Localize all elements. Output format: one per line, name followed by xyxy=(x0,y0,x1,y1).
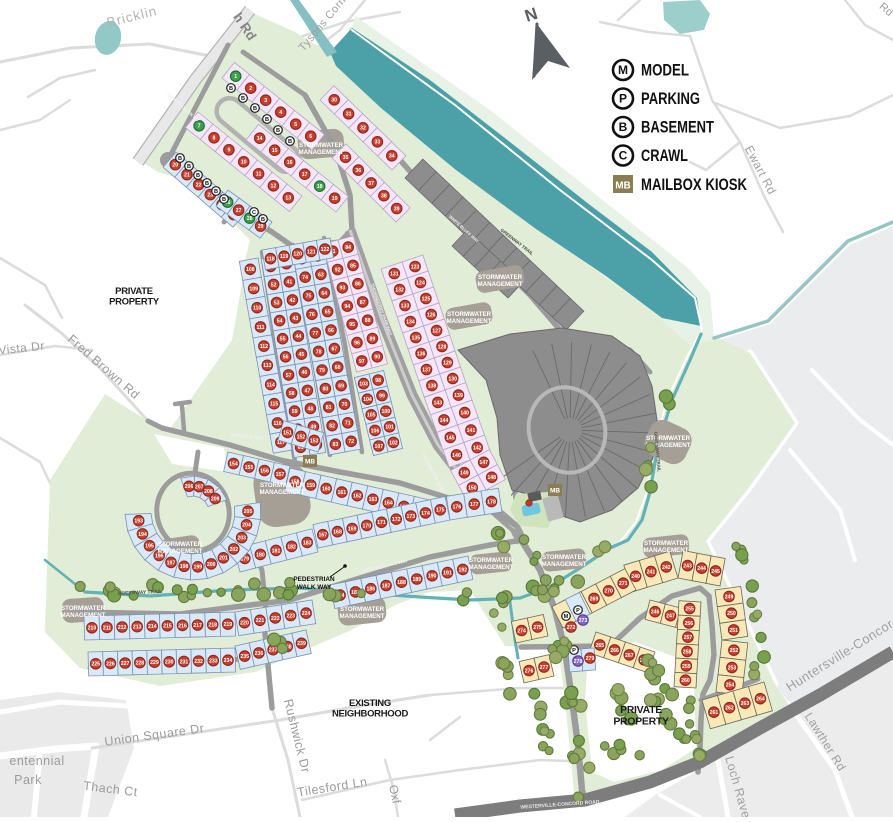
svg-text:190: 190 xyxy=(428,574,437,580)
svg-text:136: 136 xyxy=(417,351,426,357)
svg-text:275: 275 xyxy=(533,625,542,631)
svg-text:STORMWATER: STORMWATER xyxy=(447,311,492,318)
svg-text:203: 203 xyxy=(237,536,246,542)
svg-text:151: 151 xyxy=(283,430,292,436)
svg-text:P: P xyxy=(572,648,576,654)
svg-text:258: 258 xyxy=(683,649,692,655)
svg-text:265: 265 xyxy=(595,643,604,649)
svg-text:10: 10 xyxy=(241,160,247,166)
svg-text:102: 102 xyxy=(389,440,398,446)
svg-text:239: 239 xyxy=(297,641,306,647)
svg-text:68: 68 xyxy=(335,365,341,371)
svg-text:186: 186 xyxy=(366,587,375,593)
svg-text:242: 242 xyxy=(662,565,671,571)
svg-text:79: 79 xyxy=(319,368,325,374)
svg-text:STORMWATER: STORMWATER xyxy=(299,142,344,149)
svg-text:MANAGEMENT: MANAGEMENT xyxy=(339,613,384,620)
svg-text:STORMWATER: STORMWATER xyxy=(469,557,514,564)
svg-text:123: 123 xyxy=(411,264,420,270)
svg-text:241: 241 xyxy=(647,570,656,576)
svg-text:234: 234 xyxy=(224,658,233,664)
svg-text:95: 95 xyxy=(349,322,355,328)
svg-text:67: 67 xyxy=(332,347,338,353)
svg-text:54: 54 xyxy=(277,319,283,325)
svg-text:32: 32 xyxy=(360,126,366,132)
svg-text:114: 114 xyxy=(267,382,275,388)
svg-text:127: 127 xyxy=(432,328,441,334)
svg-text:72: 72 xyxy=(348,439,354,445)
svg-text:entennial: entennial xyxy=(9,754,64,768)
svg-text:B: B xyxy=(229,86,233,92)
svg-text:189: 189 xyxy=(412,577,421,583)
svg-text:215: 215 xyxy=(163,624,172,630)
svg-text:224: 224 xyxy=(302,611,311,617)
svg-text:228: 228 xyxy=(135,661,144,667)
svg-text:262: 262 xyxy=(725,706,734,712)
svg-text:154: 154 xyxy=(229,461,238,467)
svg-text:272: 272 xyxy=(567,625,576,631)
svg-text:141: 141 xyxy=(467,428,476,434)
svg-text:263: 263 xyxy=(741,701,750,707)
svg-text:59: 59 xyxy=(292,409,298,415)
svg-text:172: 172 xyxy=(392,517,401,523)
svg-text:B: B xyxy=(178,156,182,162)
svg-text:78: 78 xyxy=(316,349,322,355)
svg-text:106: 106 xyxy=(371,428,380,434)
svg-text:81: 81 xyxy=(326,405,332,411)
svg-text:MANAGEMENT: MANAGEMENT xyxy=(477,281,522,288)
svg-text:164: 164 xyxy=(384,501,393,507)
svg-text:21: 21 xyxy=(184,173,190,179)
svg-text:162: 162 xyxy=(353,494,362,500)
svg-text:109: 109 xyxy=(249,286,258,292)
svg-text:198: 198 xyxy=(180,564,189,570)
svg-text:98: 98 xyxy=(375,378,381,384)
svg-text:103: 103 xyxy=(359,382,368,388)
svg-text:6: 6 xyxy=(309,134,312,140)
svg-text:135: 135 xyxy=(411,335,420,341)
svg-text:257: 257 xyxy=(684,635,693,641)
svg-text:112: 112 xyxy=(260,344,268,350)
svg-text:173: 173 xyxy=(406,514,415,520)
svg-text:8: 8 xyxy=(213,136,216,142)
svg-text:252: 252 xyxy=(730,648,739,654)
svg-text:115: 115 xyxy=(270,402,278,408)
svg-text:STORMWATER: STORMWATER xyxy=(340,606,385,613)
svg-text:33: 33 xyxy=(375,140,381,146)
svg-text:195: 195 xyxy=(145,544,154,550)
svg-text:144: 144 xyxy=(440,418,449,424)
svg-text:B: B xyxy=(619,120,628,134)
svg-text:137: 137 xyxy=(422,367,431,373)
svg-text:P: P xyxy=(576,608,580,614)
svg-text:STORMWATER: STORMWATER xyxy=(260,482,305,489)
svg-text:B: B xyxy=(187,164,191,170)
svg-text:170: 170 xyxy=(362,523,371,529)
svg-text:82: 82 xyxy=(329,424,335,430)
svg-text:9: 9 xyxy=(227,148,230,154)
svg-text:39: 39 xyxy=(394,206,400,212)
svg-text:251: 251 xyxy=(729,628,738,634)
svg-text:MANAGEMENT: MANAGEMENT xyxy=(468,564,513,571)
svg-text:232: 232 xyxy=(194,659,203,665)
svg-text:7: 7 xyxy=(198,124,201,130)
svg-text:225: 225 xyxy=(91,662,100,668)
svg-text:231: 231 xyxy=(180,659,189,665)
svg-text:STORMWATER: STORMWATER xyxy=(158,541,203,548)
svg-text:153: 153 xyxy=(310,438,319,444)
svg-text:15: 15 xyxy=(272,148,278,154)
svg-text:116: 116 xyxy=(273,421,281,427)
svg-text:B: B xyxy=(196,173,200,179)
svg-text:192: 192 xyxy=(458,567,467,573)
svg-text:233: 233 xyxy=(209,659,218,665)
svg-text:46: 46 xyxy=(302,370,308,376)
svg-text:223: 223 xyxy=(286,613,295,619)
svg-text:STORMWATER: STORMWATER xyxy=(646,435,691,442)
svg-text:77: 77 xyxy=(312,331,318,337)
svg-text:150: 150 xyxy=(468,486,477,492)
svg-text:193: 193 xyxy=(134,519,143,525)
svg-text:43: 43 xyxy=(293,316,299,322)
svg-text:212: 212 xyxy=(118,625,127,631)
svg-text:216: 216 xyxy=(178,623,187,629)
svg-text:200: 200 xyxy=(207,562,216,568)
svg-text:133: 133 xyxy=(401,303,410,309)
svg-text:66: 66 xyxy=(328,328,334,334)
svg-text:194: 194 xyxy=(138,532,147,538)
svg-text:MANAGEMENT: MANAGEMENT xyxy=(446,318,491,325)
svg-text:219: 219 xyxy=(223,622,232,628)
svg-text:255: 255 xyxy=(685,606,694,612)
svg-text:207: 207 xyxy=(195,485,204,491)
svg-text:155: 155 xyxy=(245,465,254,471)
svg-text:202: 202 xyxy=(229,547,238,553)
svg-text:126: 126 xyxy=(427,312,436,318)
svg-text:56: 56 xyxy=(283,355,289,361)
svg-text:121: 121 xyxy=(307,249,316,255)
svg-text:156: 156 xyxy=(260,468,269,474)
svg-text:96: 96 xyxy=(354,341,360,347)
svg-text:M: M xyxy=(618,63,628,77)
svg-text:174: 174 xyxy=(421,511,430,517)
svg-text:PROPERTY: PROPERTY xyxy=(613,716,669,728)
svg-text:B: B xyxy=(261,217,265,223)
svg-text:206: 206 xyxy=(185,484,194,490)
svg-text:17: 17 xyxy=(302,172,308,178)
svg-text:47: 47 xyxy=(305,388,311,394)
svg-text:181: 181 xyxy=(272,548,281,554)
svg-text:204: 204 xyxy=(242,523,251,529)
svg-text:42: 42 xyxy=(290,298,296,304)
svg-text:176: 176 xyxy=(452,505,461,511)
svg-text:213: 213 xyxy=(133,625,142,631)
svg-text:269: 269 xyxy=(590,596,599,602)
svg-text:31: 31 xyxy=(346,112,352,118)
svg-text:218: 218 xyxy=(208,623,217,629)
svg-text:83: 83 xyxy=(333,442,339,448)
svg-text:247: 247 xyxy=(666,614,675,620)
svg-text:B: B xyxy=(222,197,226,203)
svg-text:57: 57 xyxy=(286,373,292,379)
svg-text:110: 110 xyxy=(253,306,261,312)
svg-text:MANAGEMENT: MANAGEMENT xyxy=(541,561,586,568)
svg-text:NEIGHBORHOOD: NEIGHBORHOOD xyxy=(332,709,409,720)
svg-text:111: 111 xyxy=(256,325,264,331)
svg-text:277: 277 xyxy=(540,665,549,671)
svg-text:221: 221 xyxy=(256,618,265,624)
svg-text:180: 180 xyxy=(256,552,265,558)
svg-text:246: 246 xyxy=(651,610,660,616)
svg-text:64: 64 xyxy=(321,291,327,297)
svg-text:11: 11 xyxy=(256,172,262,178)
svg-text:MB: MB xyxy=(305,459,315,466)
svg-text:94: 94 xyxy=(344,304,350,310)
svg-text:89: 89 xyxy=(370,336,376,342)
svg-text:214: 214 xyxy=(148,624,157,630)
svg-text:159: 159 xyxy=(306,483,315,489)
svg-text:237: 237 xyxy=(269,648,278,654)
svg-text:104: 104 xyxy=(363,397,372,403)
svg-text:254: 254 xyxy=(726,683,735,689)
svg-text:75: 75 xyxy=(306,294,312,300)
svg-text:PRIVATE: PRIVATE xyxy=(620,704,662,716)
svg-text:191: 191 xyxy=(443,571,452,577)
svg-text:140: 140 xyxy=(460,411,469,417)
svg-text:36: 36 xyxy=(355,168,361,174)
svg-text:90: 90 xyxy=(374,355,380,361)
svg-text:BASEMENT: BASEMENT xyxy=(641,119,714,137)
svg-text:178: 178 xyxy=(487,499,496,505)
svg-text:278: 278 xyxy=(574,659,583,665)
svg-text:182: 182 xyxy=(287,544,296,550)
svg-text:52: 52 xyxy=(271,282,277,288)
svg-text:160: 160 xyxy=(322,487,331,493)
svg-text:171: 171 xyxy=(377,520,386,526)
svg-text:63: 63 xyxy=(318,272,324,278)
svg-text:229: 229 xyxy=(150,660,159,666)
svg-text:MANAGEMENT: MANAGEMENT xyxy=(643,547,688,554)
svg-text:MAILBOX KIOSK: MAILBOX KIOSK xyxy=(641,176,747,194)
svg-text:128: 128 xyxy=(438,344,447,350)
svg-text:MB: MB xyxy=(550,488,560,495)
svg-text:MANAGEMENT: MANAGEMENT xyxy=(259,489,304,496)
svg-text:130: 130 xyxy=(448,376,457,382)
svg-text:169: 169 xyxy=(348,526,357,532)
svg-text:267: 267 xyxy=(625,653,634,659)
svg-text:167: 167 xyxy=(318,533,327,539)
svg-text:101: 101 xyxy=(385,425,394,431)
svg-text:249: 249 xyxy=(725,594,734,600)
svg-text:222: 222 xyxy=(271,616,280,622)
svg-text:210: 210 xyxy=(88,626,97,632)
svg-text:113: 113 xyxy=(263,363,271,369)
svg-text:B: B xyxy=(214,189,218,195)
svg-text:P: P xyxy=(619,92,627,106)
svg-text:14: 14 xyxy=(257,136,263,142)
svg-text:69: 69 xyxy=(338,384,344,390)
svg-text:143: 143 xyxy=(433,400,442,406)
svg-text:235: 235 xyxy=(240,654,249,660)
svg-text:70: 70 xyxy=(342,402,348,408)
svg-text:273: 273 xyxy=(579,618,588,624)
svg-text:85: 85 xyxy=(350,263,356,269)
svg-text:157: 157 xyxy=(276,472,285,478)
svg-text:274: 274 xyxy=(517,628,526,634)
svg-text:253: 253 xyxy=(728,665,737,671)
svg-text:MANAGEMENT: MANAGEMENT xyxy=(60,612,105,619)
svg-text:236: 236 xyxy=(255,651,264,657)
svg-text:118: 118 xyxy=(266,257,274,263)
svg-text:92: 92 xyxy=(335,267,341,273)
svg-text:271: 271 xyxy=(619,581,628,587)
svg-text:B: B xyxy=(241,96,245,102)
svg-text:28: 28 xyxy=(247,216,253,222)
svg-text:205: 205 xyxy=(244,509,253,515)
svg-text:12: 12 xyxy=(271,184,277,190)
svg-text:5: 5 xyxy=(294,122,297,128)
svg-text:PARKING: PARKING xyxy=(641,90,700,108)
svg-text:44: 44 xyxy=(296,334,302,340)
svg-text:86: 86 xyxy=(355,282,361,288)
svg-text:WALK WAY: WALK WAY xyxy=(297,584,332,591)
svg-text:65: 65 xyxy=(325,309,331,315)
svg-text:209: 209 xyxy=(211,496,220,502)
svg-text:163: 163 xyxy=(369,497,378,503)
svg-text:208: 208 xyxy=(204,489,213,495)
svg-text:B: B xyxy=(205,181,209,187)
svg-text:259: 259 xyxy=(682,664,691,670)
svg-text:34: 34 xyxy=(389,154,395,160)
svg-text:CRAWL: CRAWL xyxy=(641,147,688,165)
svg-text:107: 107 xyxy=(374,444,383,450)
svg-text:139: 139 xyxy=(454,393,463,399)
svg-text:16: 16 xyxy=(287,160,293,166)
svg-text:STORMWATER: STORMWATER xyxy=(644,540,689,547)
svg-text:Park: Park xyxy=(14,773,42,787)
svg-text:48: 48 xyxy=(308,406,314,412)
svg-text:B: B xyxy=(288,139,292,145)
svg-text:250: 250 xyxy=(727,611,736,617)
svg-text:4: 4 xyxy=(279,110,282,116)
svg-text:PRIVATE: PRIVATE xyxy=(115,286,153,297)
svg-text:55: 55 xyxy=(280,337,286,343)
svg-text:264: 264 xyxy=(756,697,765,703)
svg-text:149: 149 xyxy=(460,471,469,477)
svg-text:30: 30 xyxy=(331,98,337,104)
svg-text:124: 124 xyxy=(416,280,425,286)
svg-text:MODEL: MODEL xyxy=(641,62,689,80)
svg-text:3: 3 xyxy=(264,98,267,104)
svg-text:B: B xyxy=(253,106,257,112)
svg-text:53: 53 xyxy=(274,300,280,306)
svg-text:147: 147 xyxy=(479,460,488,466)
svg-text:58: 58 xyxy=(289,391,295,397)
svg-text:244: 244 xyxy=(697,566,706,572)
svg-text:76: 76 xyxy=(309,312,315,318)
svg-text:27: 27 xyxy=(236,208,242,214)
svg-text:PEDESTRIAN: PEDESTRIAN xyxy=(293,576,335,583)
svg-text:188: 188 xyxy=(397,580,406,586)
svg-text:134: 134 xyxy=(406,319,415,325)
svg-text:201: 201 xyxy=(219,556,228,562)
svg-text:220: 220 xyxy=(240,621,249,627)
svg-text:87: 87 xyxy=(360,300,366,306)
svg-text:129: 129 xyxy=(443,360,452,366)
svg-text:256: 256 xyxy=(684,621,693,627)
svg-text:18: 18 xyxy=(317,184,323,190)
svg-text:138: 138 xyxy=(428,383,437,389)
svg-text:41: 41 xyxy=(287,280,293,286)
svg-text:29: 29 xyxy=(258,224,264,230)
svg-text:266: 266 xyxy=(610,648,619,654)
svg-text:276: 276 xyxy=(525,668,534,674)
svg-text:100: 100 xyxy=(381,409,390,415)
svg-text:13: 13 xyxy=(285,196,291,202)
svg-text:MANAGEMENT: MANAGEMENT xyxy=(157,548,202,555)
svg-text:99: 99 xyxy=(379,394,385,400)
svg-text:C: C xyxy=(619,149,628,163)
svg-text:131: 131 xyxy=(390,271,399,277)
svg-text:122: 122 xyxy=(321,247,330,253)
svg-text:80: 80 xyxy=(323,386,329,392)
svg-text:261: 261 xyxy=(710,710,719,716)
svg-text:175: 175 xyxy=(436,508,445,514)
svg-text:168: 168 xyxy=(333,530,342,536)
svg-text:152: 152 xyxy=(297,434,306,440)
svg-text:161: 161 xyxy=(337,490,346,496)
svg-text:187: 187 xyxy=(382,583,391,589)
svg-text:227: 227 xyxy=(121,661,130,667)
svg-text:177: 177 xyxy=(470,502,479,508)
svg-text:93: 93 xyxy=(340,286,346,292)
svg-text:20: 20 xyxy=(172,163,178,169)
svg-text:74: 74 xyxy=(302,275,308,281)
svg-text:2: 2 xyxy=(249,86,252,92)
svg-text:STORMWATER: STORMWATER xyxy=(542,554,587,561)
svg-text:183: 183 xyxy=(303,540,312,546)
svg-text:119: 119 xyxy=(280,254,288,260)
svg-text:197: 197 xyxy=(167,560,176,566)
svg-text:279: 279 xyxy=(586,656,595,662)
svg-text:45: 45 xyxy=(299,352,305,358)
svg-text:37: 37 xyxy=(368,181,374,187)
svg-text:270: 270 xyxy=(604,589,613,595)
svg-text:125: 125 xyxy=(422,296,431,302)
svg-text:STORMWATER: STORMWATER xyxy=(478,274,523,281)
svg-text:230: 230 xyxy=(165,660,174,666)
svg-text:B: B xyxy=(265,117,269,123)
svg-text:199: 199 xyxy=(193,565,202,571)
svg-text:M: M xyxy=(564,614,569,620)
svg-text:217: 217 xyxy=(193,623,202,629)
svg-text:MANAGEMENT: MANAGEMENT xyxy=(298,149,343,156)
svg-text:243: 243 xyxy=(683,564,692,570)
svg-text:245: 245 xyxy=(711,569,720,575)
svg-text:108: 108 xyxy=(246,267,255,273)
svg-text:88: 88 xyxy=(365,318,371,324)
svg-text:19: 19 xyxy=(332,196,338,202)
svg-text:MB: MB xyxy=(615,181,631,192)
svg-text:226: 226 xyxy=(106,661,115,667)
svg-text:97: 97 xyxy=(359,359,365,365)
svg-text:240: 240 xyxy=(631,574,640,580)
svg-text:C: C xyxy=(252,210,256,216)
svg-text:105: 105 xyxy=(367,413,376,419)
svg-text:EXISTING: EXISTING xyxy=(349,698,391,709)
svg-text:260: 260 xyxy=(681,678,690,684)
svg-text:145: 145 xyxy=(446,435,455,441)
